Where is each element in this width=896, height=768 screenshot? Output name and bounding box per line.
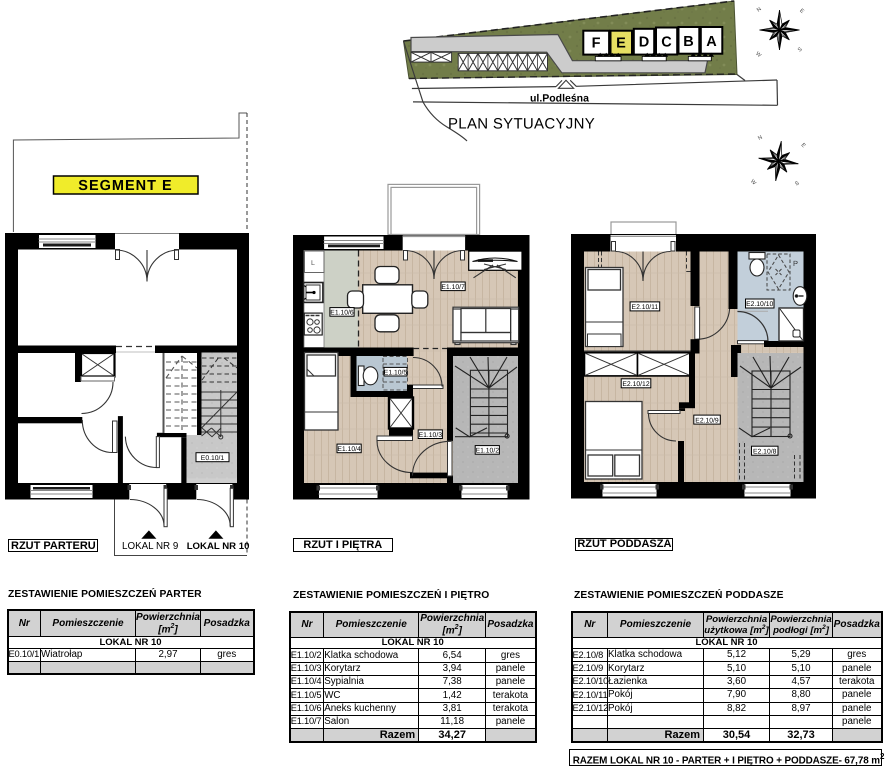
svg-text:F: F xyxy=(592,36,601,52)
svg-text:SEGMENT E: SEGMENT E xyxy=(78,178,172,194)
svg-text:E1.10/4: E1.10/4 xyxy=(337,446,361,453)
svg-text:C: C xyxy=(661,35,672,51)
svg-text:PLAN SYTUACYJNY: PLAN SYTUACYJNY xyxy=(448,116,595,133)
svg-text:W: W xyxy=(749,179,757,187)
svg-text:P: P xyxy=(793,259,798,268)
svg-text:S: S xyxy=(797,46,804,53)
svg-text:L: L xyxy=(311,260,315,267)
svg-text:W: W xyxy=(754,51,762,59)
svg-text:E2.10/12: E2.10/12 xyxy=(622,381,649,388)
svg-text:E: E xyxy=(798,8,805,15)
svg-text:E1.10/5: E1.10/5 xyxy=(384,369,408,376)
svg-text:E1.10/3: E1.10/3 xyxy=(419,432,443,439)
svg-text:E1.10/6: E1.10/6 xyxy=(330,310,354,317)
svg-text:A: A xyxy=(706,34,717,50)
svg-text:D: D xyxy=(639,35,649,51)
svg-text:E2.10/11: E2.10/11 xyxy=(632,304,659,311)
svg-text:E: E xyxy=(799,142,806,149)
svg-text:E1.10/7: E1.10/7 xyxy=(441,284,465,291)
svg-text:E2.10/10: E2.10/10 xyxy=(746,301,773,308)
svg-text:B: B xyxy=(683,34,693,50)
svg-text:E2.10/8: E2.10/8 xyxy=(753,448,777,455)
svg-text:E1.10/2: E1.10/2 xyxy=(476,448,500,455)
svg-text:N: N xyxy=(756,6,763,13)
svg-text:E2.10/9: E2.10/9 xyxy=(695,417,719,424)
svg-text:ul.Podleśna: ul.Podleśna xyxy=(530,93,589,105)
svg-text:E0.10/1: E0.10/1 xyxy=(201,455,225,462)
svg-text:S: S xyxy=(794,180,801,187)
svg-text:N: N xyxy=(757,135,764,142)
svg-text:E: E xyxy=(616,36,626,52)
